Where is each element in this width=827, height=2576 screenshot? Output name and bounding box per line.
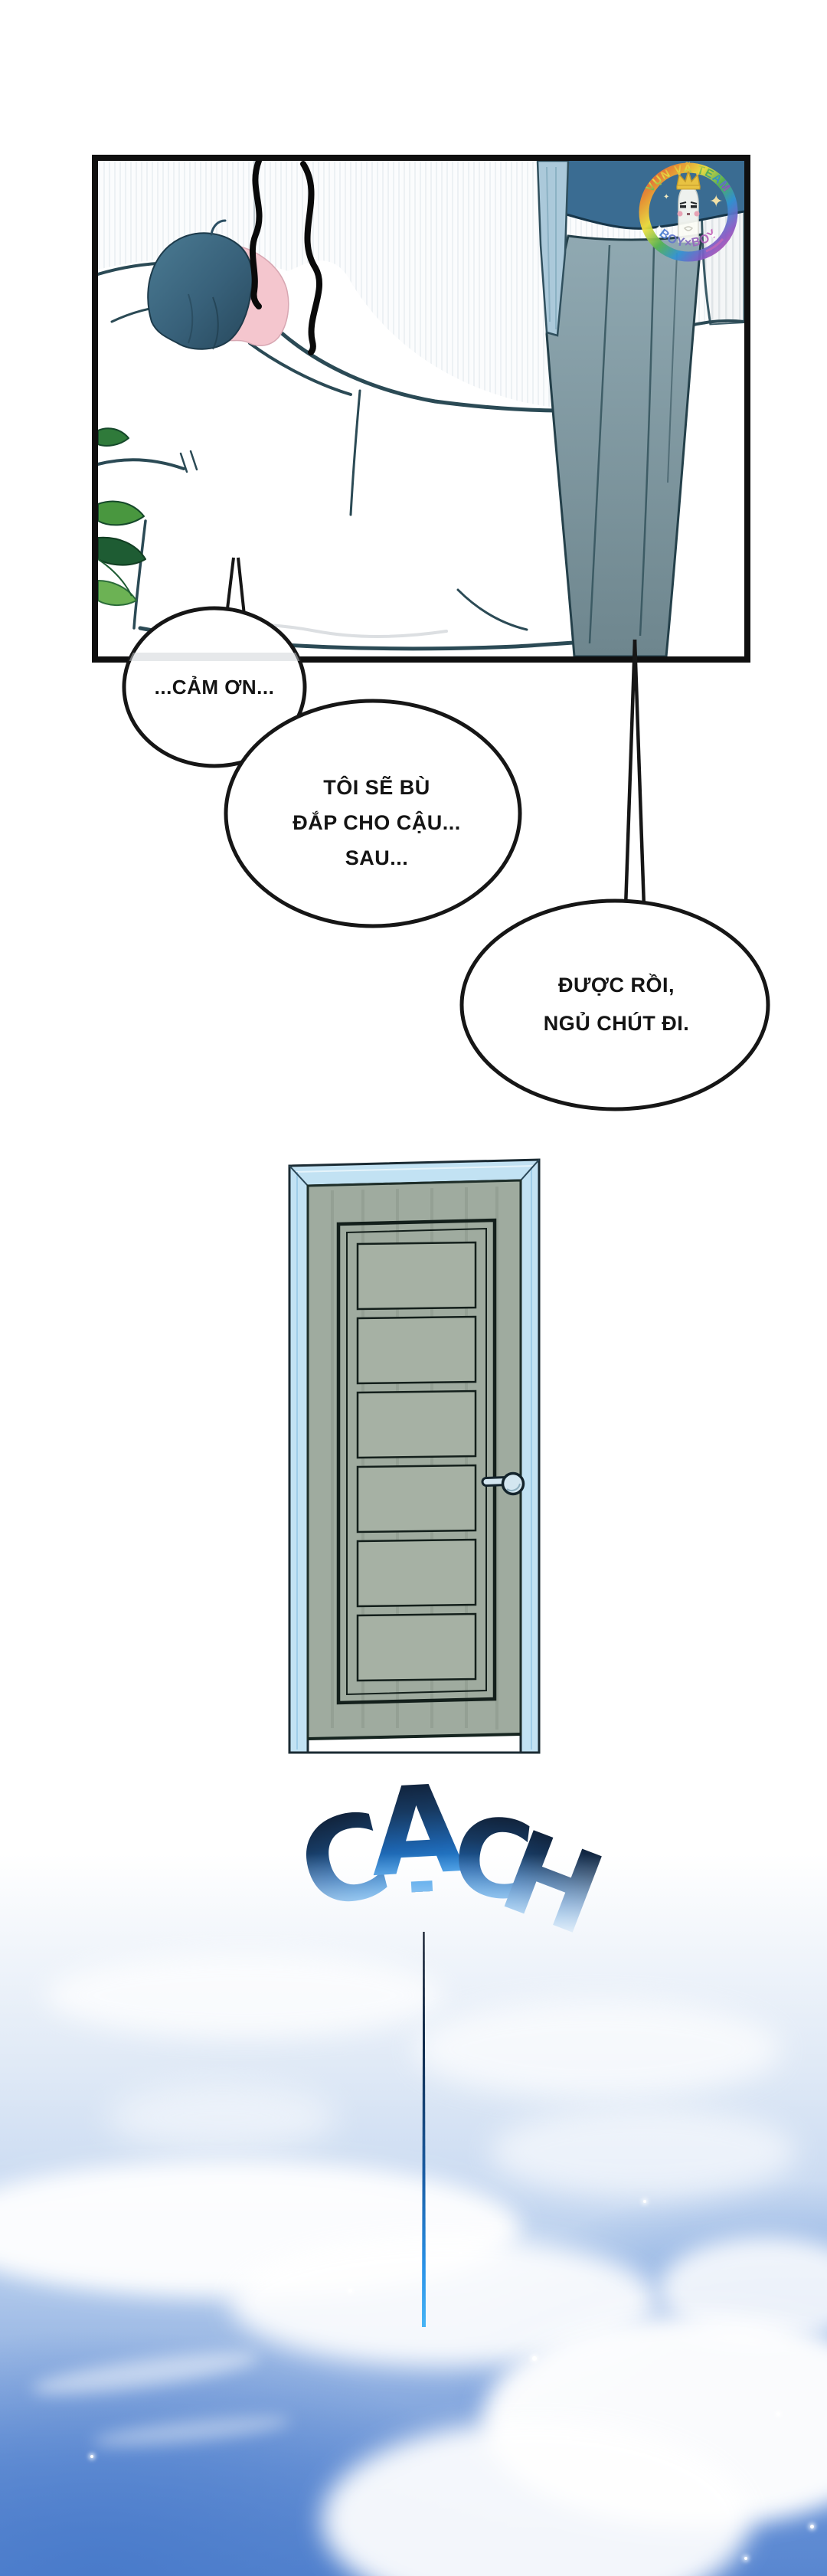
bubble-line: ĐẮP CHO CẬU... xyxy=(250,806,503,841)
svg-text:✦: ✦ xyxy=(709,231,717,241)
bubble-line: ĐƯỢC RỒI, xyxy=(490,967,743,1005)
cloud xyxy=(107,2083,337,2152)
svg-text:✦: ✦ xyxy=(655,223,663,234)
cloud xyxy=(490,2106,796,2198)
svg-text:✦: ✦ xyxy=(663,193,669,201)
page-background: VỤN VÃ TEAM BOY×BOY ✦ ✦ ✦ ✦ xyxy=(0,0,827,2576)
sparkle xyxy=(459,2252,462,2254)
sparkle xyxy=(776,2412,780,2416)
mascot-finger xyxy=(678,185,700,242)
sparkle xyxy=(744,2557,747,2560)
speech-bubble-2-text: TÔI SẼ BÙ ĐẮP CHO CẬU... SAU... xyxy=(250,771,503,876)
sparkle xyxy=(348,2289,352,2293)
cloud xyxy=(46,1953,444,2038)
sparkle xyxy=(643,2200,646,2203)
bubble-line: NGỦ CHÚT ĐI. xyxy=(490,1005,743,1043)
sparkle xyxy=(810,2525,814,2529)
cloud-wisp xyxy=(91,2410,292,2452)
bubble-line: TÔI SẼ BÙ xyxy=(250,771,503,806)
speech-bubble-3-text: ĐƯỢC RỒI, NGỦ CHÚT ĐI. xyxy=(490,967,743,1043)
bubble-line: ...CẢM ƠN... xyxy=(129,673,300,702)
sky-background xyxy=(0,1854,827,2576)
door-illustration xyxy=(286,1154,542,1754)
cloud xyxy=(413,1999,781,2099)
cloud-wisp xyxy=(30,2343,261,2402)
sparkle xyxy=(532,2356,537,2361)
svg-text:✦: ✦ xyxy=(709,191,723,211)
sparkle xyxy=(567,2436,570,2439)
bubble-line: SAU... xyxy=(250,841,503,876)
watermark-logo: VỤN VÃ TEAM BOY×BOY ✦ ✦ ✦ ✦ xyxy=(633,156,744,268)
speech-bubble-1-text: ...CẢM ƠN... xyxy=(129,673,300,702)
sparkle xyxy=(90,2455,93,2458)
hair xyxy=(148,233,252,349)
